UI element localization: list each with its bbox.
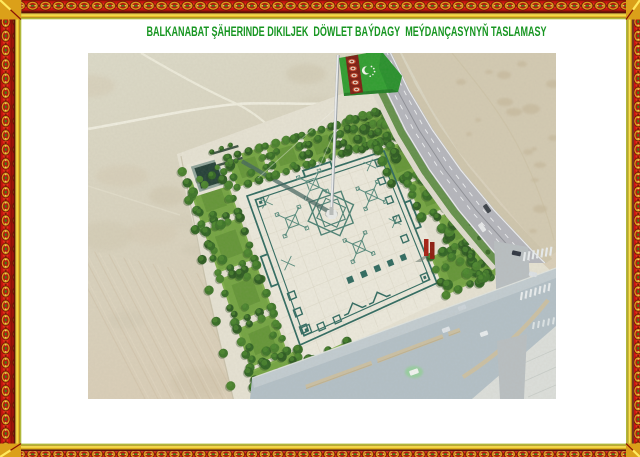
svg-text:BALKANABAT ŞÄHERINDE DIKILJEK: BALKANABAT ŞÄHERINDE DIKILJEK DÖWLET BAÝ… [146, 24, 546, 39]
